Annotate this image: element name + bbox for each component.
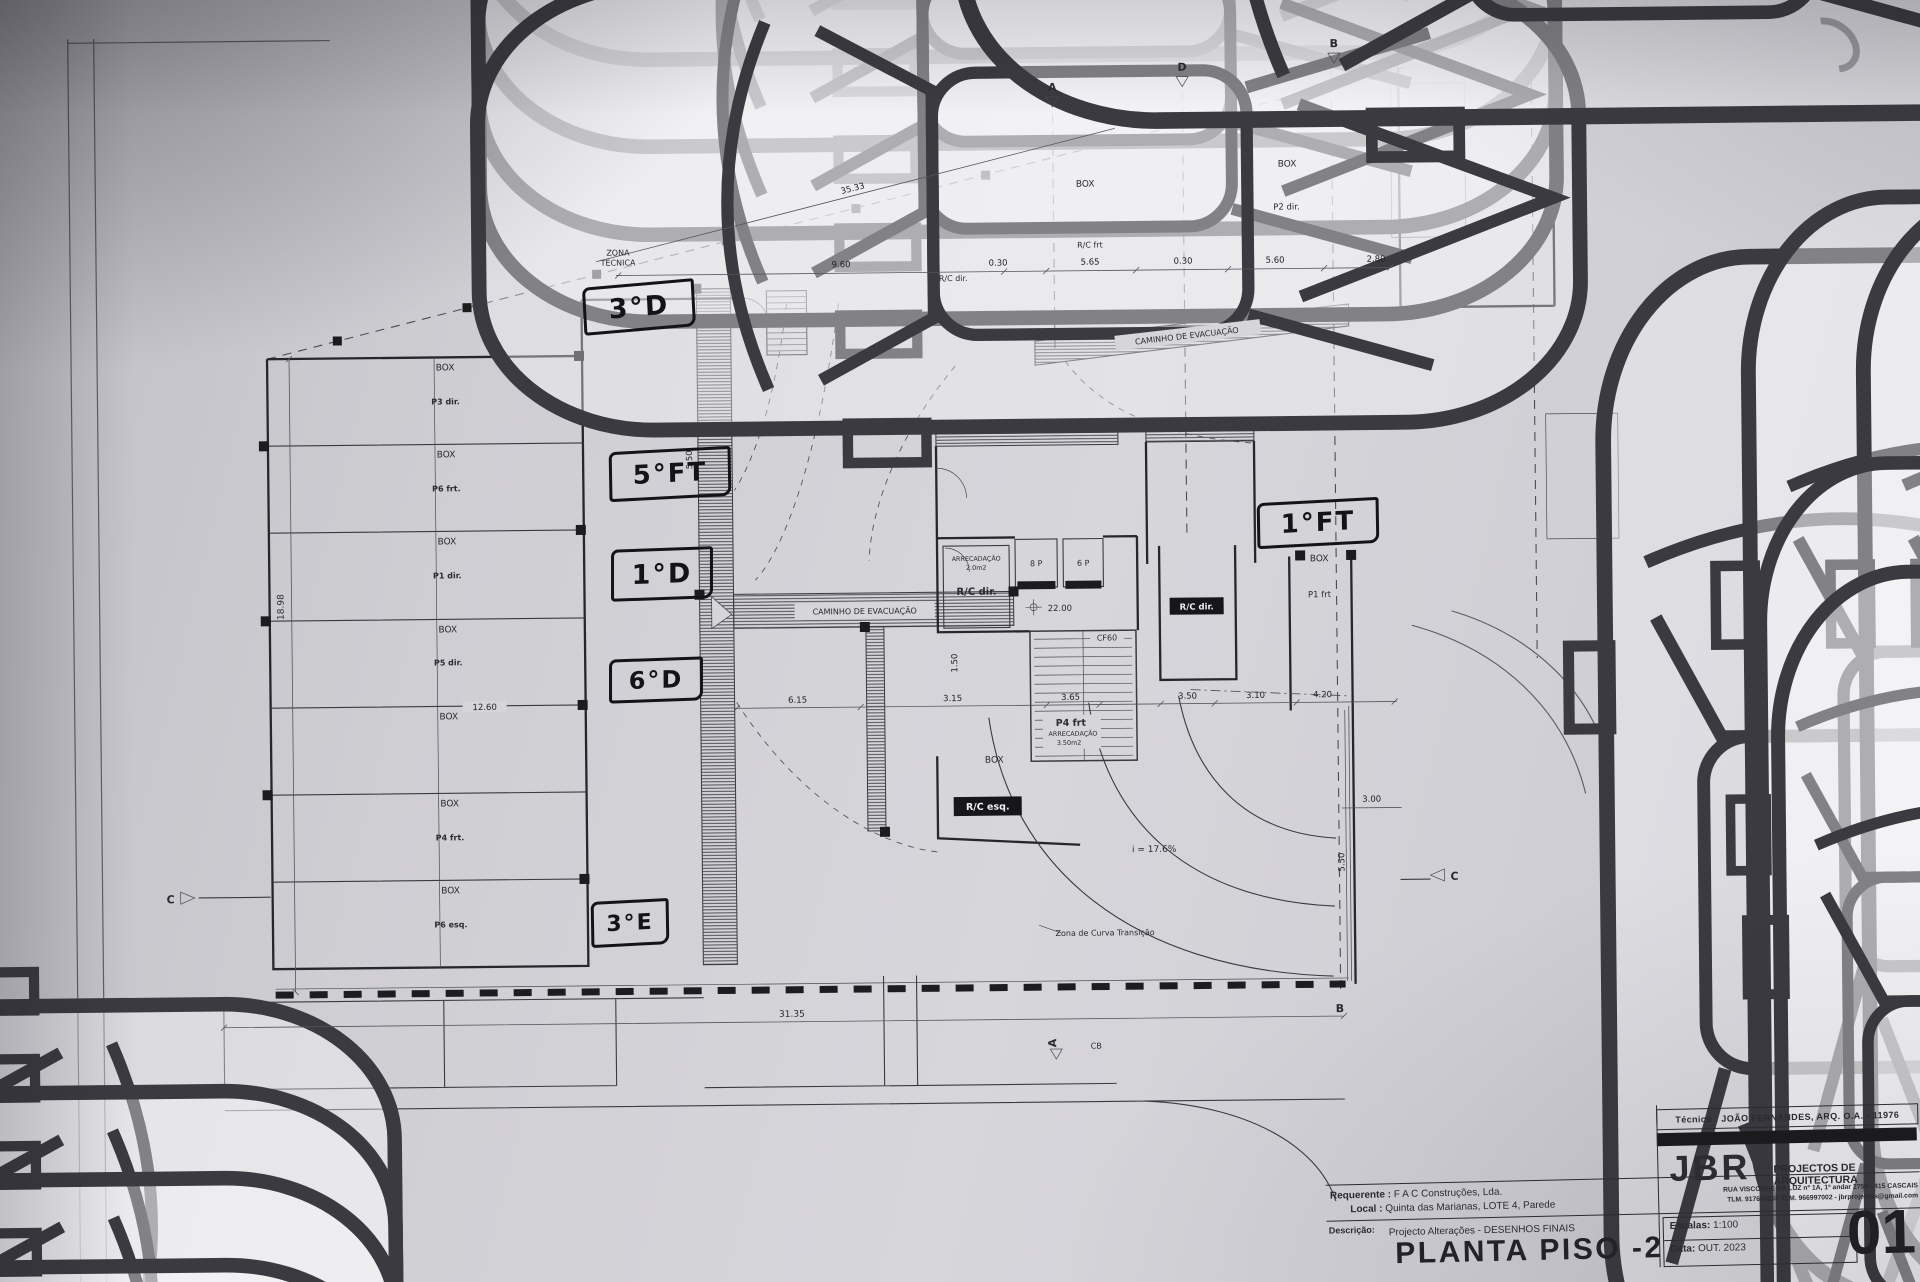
dim: 4.20 <box>1313 690 1332 700</box>
floor-plan-drawing: ZONA TÉCNICA CAMINHO DE EVACUAÇÃO CAMINH… <box>0 0 1920 1282</box>
handwritten-unit-1ft: 1°FT <box>1257 497 1380 549</box>
dim-bottom: 31.35 <box>779 1010 805 1020</box>
section-marker-b: B <box>1330 37 1339 50</box>
arrecadacao-area: 2.0m2 <box>966 564 987 572</box>
box-label: BOX <box>437 450 456 460</box>
arrecadacao-label: ARRECADAÇÃO <box>1048 729 1097 739</box>
dim: 3.50 <box>1178 692 1197 702</box>
requerente-row: Requerente : F A C Construções, Lda. <box>1330 1187 1503 1202</box>
local-value: Quinta das Marianas, LOTE 4, Parede <box>1385 1200 1555 1215</box>
date-label: Data: <box>1670 1243 1695 1255</box>
box-label: BOX <box>436 363 455 373</box>
dim: 2.80 <box>1367 255 1386 265</box>
arrecadacao-area: 3.50m2 <box>1057 739 1082 747</box>
box-label: BOX <box>1278 159 1297 169</box>
section-marker-d: D <box>1177 61 1186 74</box>
box-label: BOX <box>438 537 457 547</box>
local-label: Local : <box>1350 1203 1382 1215</box>
section-marker-c: C <box>167 893 175 906</box>
handwritten-unit-3d: 3°D <box>582 278 696 336</box>
section-marker-cb: CB <box>1091 1042 1102 1051</box>
dim: 0.30 <box>989 258 1008 268</box>
section-marker-b: B <box>1336 1002 1345 1015</box>
local-row: Local : Quinta das Marianas, LOTE 4, Par… <box>1350 1200 1555 1216</box>
handwritten-unit-1d: 1°D <box>611 546 713 602</box>
dim: 3.15 <box>943 694 962 704</box>
box-label: BOX <box>1076 180 1095 190</box>
lift-8p-label: 8 P <box>1030 559 1043 568</box>
section-marker-c: C <box>1450 870 1458 883</box>
requerente-value: F A C Construções, Lda. <box>1394 1187 1503 1200</box>
dim: 9.60 <box>832 260 851 270</box>
date-row: Data: OUT. 2023 <box>1664 1237 1856 1264</box>
dim: 3.10 <box>1246 691 1265 701</box>
sheet-number: 01 <box>1846 1201 1916 1265</box>
dim: 12.60 <box>472 703 496 713</box>
rc-esq-plate: R/C esq. <box>966 801 1010 812</box>
rc-frt-label: R/C frt <box>1077 240 1103 249</box>
zona-tecnica-label: ZONA <box>606 248 630 257</box>
box-label: BOX <box>441 886 460 896</box>
scale-label: Escalas: <box>1670 1220 1711 1232</box>
p1-frt-label: P1 frt <box>1308 590 1332 600</box>
stall-tag: P1 dir. <box>433 571 462 580</box>
section-marker-a: A <box>1048 81 1057 94</box>
dim: 3.65 <box>1061 693 1080 703</box>
lift-6p-label: 6 P <box>1077 559 1090 568</box>
dim-left: 18.98 <box>276 594 286 620</box>
descricao-label: Descrição: <box>1329 1225 1375 1236</box>
dim: 5.50 <box>1337 852 1347 871</box>
dim: 1.50 <box>950 654 960 673</box>
scale-date-box: Escalas: 1:100 Data: OUT. 2023 <box>1663 1213 1858 1267</box>
drawing-title: PLANTA PISO -2 <box>1395 1231 1664 1271</box>
dim: 0.30 <box>1174 257 1193 267</box>
property-line <box>276 984 1346 995</box>
cf60-label: CF60 <box>1097 633 1117 642</box>
box-label: BOX <box>985 756 1004 766</box>
zona-tecnica-label: TÉCNICA <box>599 256 636 267</box>
technician-strip: Técnico : JOÃO FERNANDES, ARQ. O.A. - 11… <box>1656 1103 1918 1130</box>
date-value: OUT. 2023 <box>1698 1242 1746 1254</box>
arrecadacao-label: ARRECADAÇÃO <box>952 554 1001 564</box>
handwritten-unit-6d: 6°D <box>609 656 703 703</box>
stall-tag: P3 dir. <box>431 397 460 406</box>
rc-dir-room-label: R/C dir. <box>956 587 996 598</box>
caminho-evacuacao-label: CAMINHO DE EVACUAÇÃO <box>813 605 917 616</box>
cars <box>0 0 1920 1282</box>
box-label: BOX <box>440 799 459 809</box>
rc-dir-label: R/C dir. <box>939 274 968 283</box>
dim: 5.65 <box>1081 258 1100 268</box>
dim: 5.60 <box>1266 256 1285 266</box>
section-marker-a: A <box>1046 1038 1059 1047</box>
stall-tag: P4 frt. <box>436 833 465 842</box>
firm-logo: JBR <box>1669 1146 1751 1190</box>
photographed-floorplan-sheet: ZONA TÉCNICA CAMINHO DE EVACUAÇÃO CAMINH… <box>0 0 1920 1282</box>
box-label: BOX <box>438 625 457 635</box>
stall-tag: P5 dir. <box>434 658 463 667</box>
level-marker: 22.00 <box>1048 604 1072 614</box>
requerente-label: Requerente : <box>1330 1189 1391 1201</box>
scale-value: 1:100 <box>1713 1219 1738 1231</box>
ramp-slope-label: i = 17.6% <box>1132 845 1177 855</box>
curva-transicao-label: Zona de Curva Transição <box>1055 928 1154 938</box>
dim: 6.15 <box>788 696 807 706</box>
stall-tag: P6 frt. <box>432 484 461 493</box>
title-block: Técnico : JOÃO FERNANDES, ARQ. O.A. - 11… <box>1324 1099 1920 1282</box>
dim: 3.00 <box>1362 795 1381 805</box>
p4-frt-label: P4 frt <box>1056 718 1087 729</box>
handwritten-unit-3e: 3°E <box>591 898 670 948</box>
p2-dir-label: P2 dir. <box>1273 202 1300 212</box>
box-label: BOX <box>439 712 458 722</box>
stall-tag: P6 esq. <box>434 920 467 929</box>
box-label: BOX <box>1310 554 1329 564</box>
rc-dir-plate: R/C dir. <box>1180 602 1214 612</box>
handwritten-unit-5ft: 5°FT <box>609 446 732 502</box>
